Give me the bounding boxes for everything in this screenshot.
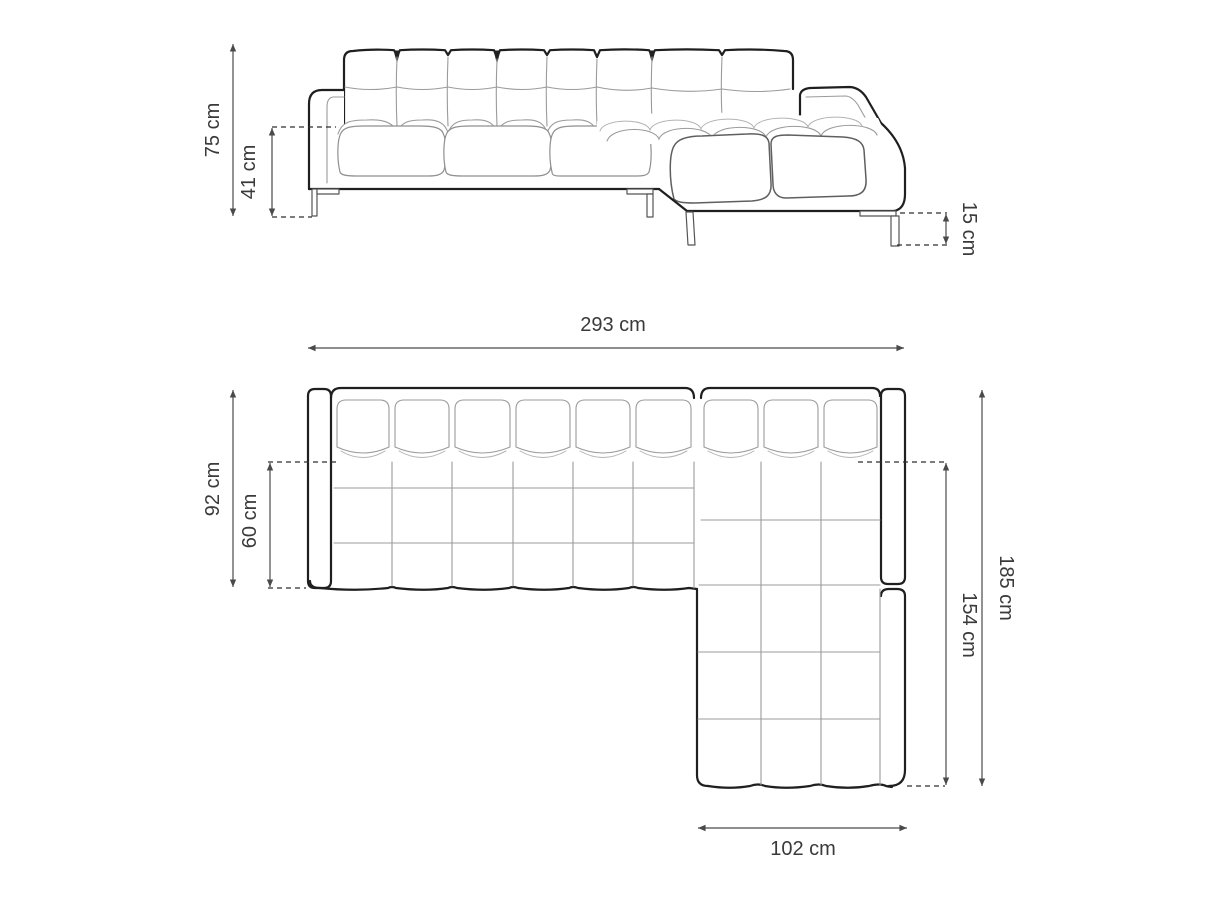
dim-label-total-width: 293 cm xyxy=(580,314,646,336)
dim-top-seat-depth: 60 cm xyxy=(239,462,336,588)
dim-top-chaise-width: 102 cm xyxy=(698,828,907,860)
top-grid xyxy=(334,462,880,785)
dim-label-chaise-outer: 185 cm xyxy=(995,555,1017,621)
dim-label-total-height: 75 cm xyxy=(202,103,224,157)
sofa-dimension-diagram: 75 cm 41 cm 15 cm 293 cm xyxy=(0,0,1214,910)
dim-top-chaise-inner: 154 cm xyxy=(858,462,980,786)
front-chaise-cushions xyxy=(670,134,866,203)
dim-label-seat-height: 41 cm xyxy=(238,145,260,199)
dim-label-seat-depth: 60 cm xyxy=(239,494,261,548)
dim-front-total-height: 75 cm xyxy=(202,44,233,216)
dim-label-chaise-width: 102 cm xyxy=(770,838,836,860)
top-left-armrest xyxy=(308,389,331,588)
top-back-cushions xyxy=(337,400,877,458)
dim-top-total-width: 293 cm xyxy=(308,314,904,348)
dim-top-total-depth: 92 cm xyxy=(202,390,233,587)
top-view: 293 cm xyxy=(202,314,1017,860)
dim-label-chaise-inner: 154 cm xyxy=(958,592,980,658)
dim-label-leg-height: 15 cm xyxy=(958,202,980,256)
top-right-armrest xyxy=(881,389,905,584)
dim-front-leg-height: 15 cm xyxy=(897,202,980,256)
front-view: 75 cm 41 cm 15 cm xyxy=(202,44,980,256)
dim-top-chaise-outer: 185 cm xyxy=(982,390,1017,786)
dim-label-total-depth: 92 cm xyxy=(202,462,224,516)
